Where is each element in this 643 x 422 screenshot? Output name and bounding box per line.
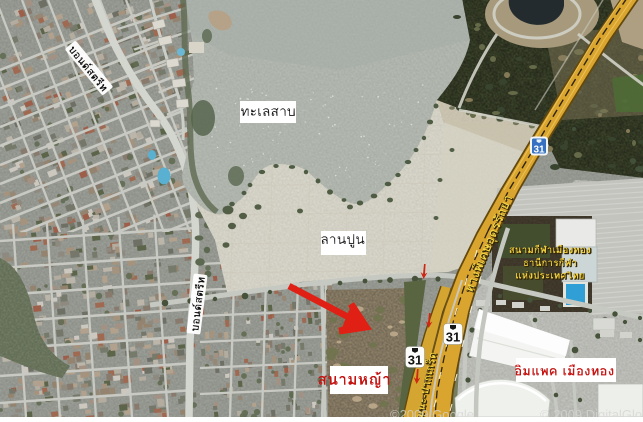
svg-text:31: 31 (533, 144, 545, 155)
svg-text:©2009 Google: ©2009 Google (390, 407, 474, 417)
svg-text:31: 31 (446, 329, 460, 344)
svg-text:31: 31 (408, 352, 422, 367)
svg-text:© 2009 DigitalGlobe: © 2009 DigitalGlobe (540, 407, 643, 417)
